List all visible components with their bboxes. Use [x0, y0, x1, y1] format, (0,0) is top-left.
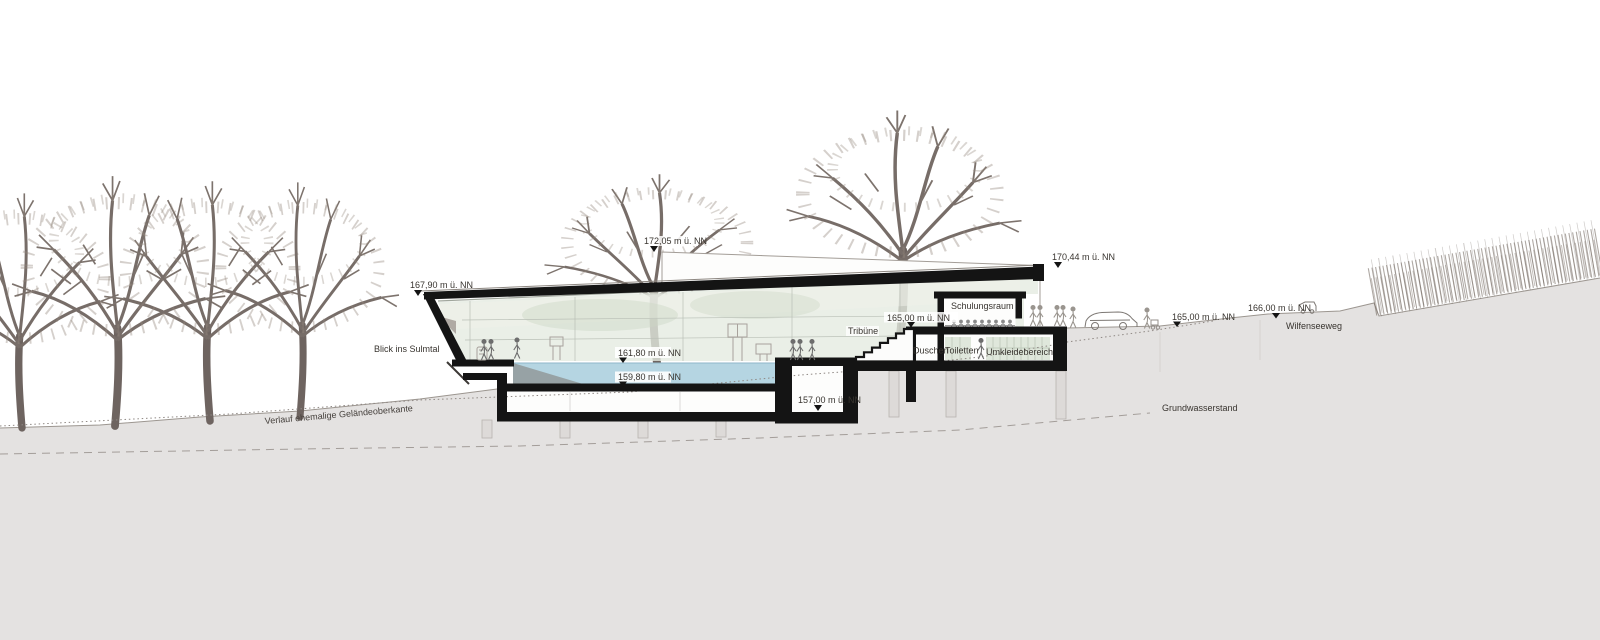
section-drawing: 167,90 m ü. NN 172,05 m ü. NN 170,44 m ü… [0, 0, 1600, 640]
marker-skylight-top: 172,05 m ü. NN [642, 236, 707, 252]
label-tribune: Tribüne [848, 326, 878, 336]
left-deck [452, 360, 514, 367]
sump-bottom-slab [775, 414, 858, 424]
pool-basement [507, 391, 775, 412]
tree [104, 181, 308, 421]
marker-upper-floor-text: 165,00 m ü. NN [887, 313, 950, 323]
pool-floor-slab [507, 384, 782, 392]
roof-end-cap [1033, 264, 1044, 281]
architectural-section-page: 167,90 m ü. NN 172,05 m ü. NN 170,44 m ü… [0, 0, 1600, 640]
marker-roof-right-text: 170,44 m ü. NN [1052, 252, 1115, 262]
training-room-right-wall [1016, 292, 1023, 319]
level-arrow-icon [1054, 262, 1062, 268]
marker-roof-right: 170,44 m ü. NN [1052, 252, 1115, 268]
tree [208, 182, 399, 417]
tree-row-left [0, 176, 399, 428]
marker-terrain-text: 165,00 m ü. NN [1172, 312, 1235, 322]
training-room-roof [934, 292, 1026, 299]
marker-path-text: 166,00 m ü. NN [1248, 303, 1311, 313]
rooms-floor-slab [906, 327, 1067, 335]
label-showers: Duschen [913, 346, 949, 356]
marker-water-text: 161,80 m ü. NN [618, 348, 681, 358]
sump-right-wall [843, 360, 858, 414]
label-groundwater: Grundwasserstand [1162, 403, 1238, 413]
level-arrow-icon [414, 290, 422, 296]
marker-basement-text: 157,00 m ü. NN [798, 395, 861, 405]
label-path-name: Wilfenseeweg [1286, 321, 1342, 331]
marker-roof-left-text: 167,90 m ü. NN [410, 280, 473, 290]
tree [0, 193, 119, 428]
level-arrow-icon [650, 246, 658, 252]
label-view: Blick ins Sulmtal [374, 344, 440, 354]
marker-skylight-text: 172,05 m ü. NN [644, 236, 707, 246]
label-training-room: Schulungsraum [951, 301, 1014, 311]
label-changing-area: Umkleidebereich [986, 347, 1053, 357]
sump-left-wall [775, 360, 792, 414]
basement-left-wall [497, 373, 507, 414]
foundation-toe [463, 373, 499, 380]
marker-floor-text: 159,80 m ü. NN [618, 372, 681, 382]
building-right-wall [1053, 327, 1067, 372]
label-toilets: Toiletten [945, 346, 979, 356]
